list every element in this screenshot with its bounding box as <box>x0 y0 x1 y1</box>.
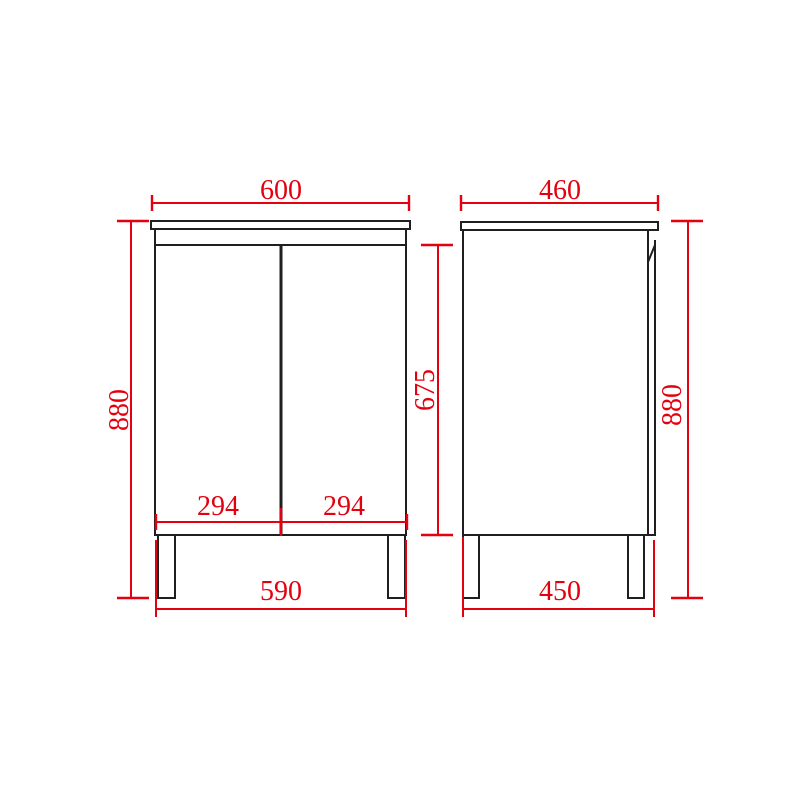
side-dimensions: 460 880 450 <box>461 175 703 617</box>
dim-front-overall-height: 880 <box>104 221 149 598</box>
front-top-rail <box>155 229 406 245</box>
dim-front-top-width-label: 600 <box>260 175 302 206</box>
dim-left-door-width-label: 294 <box>197 491 239 522</box>
dim-side-overall-height: 880 <box>657 221 703 598</box>
dim-front-top-width: 600 <box>152 175 409 211</box>
side-back-leg <box>463 535 479 598</box>
front-left-leg <box>158 535 175 598</box>
front-countertop <box>151 221 410 229</box>
dim-side-top-depth: 460 <box>461 175 658 211</box>
front-view <box>151 221 410 598</box>
side-countertop <box>461 222 658 230</box>
dim-right-door-width-label: 294 <box>323 491 365 522</box>
side-front-leg <box>628 535 644 598</box>
side-door-chamfer <box>648 245 655 262</box>
dim-front-overall-height-label: 880 <box>104 389 135 431</box>
dim-front-door-height: 675 <box>410 245 453 535</box>
dim-side-leg-span-label: 450 <box>539 576 581 607</box>
dim-front-leg-span-label: 590 <box>260 576 302 607</box>
dim-side-overall-height-label: 880 <box>657 384 688 426</box>
dim-front-door-height-label: 675 <box>410 369 441 411</box>
dimension-drawing: 600 880 675 294 <box>0 0 800 800</box>
side-view <box>461 222 658 598</box>
dim-side-leg-span: 450 <box>463 537 654 617</box>
drawing-canvas: 600 880 675 294 <box>0 0 800 800</box>
front-right-leg <box>388 535 405 598</box>
dim-front-leg-span: 590 <box>156 540 406 617</box>
dim-side-top-depth-label: 460 <box>539 175 581 206</box>
